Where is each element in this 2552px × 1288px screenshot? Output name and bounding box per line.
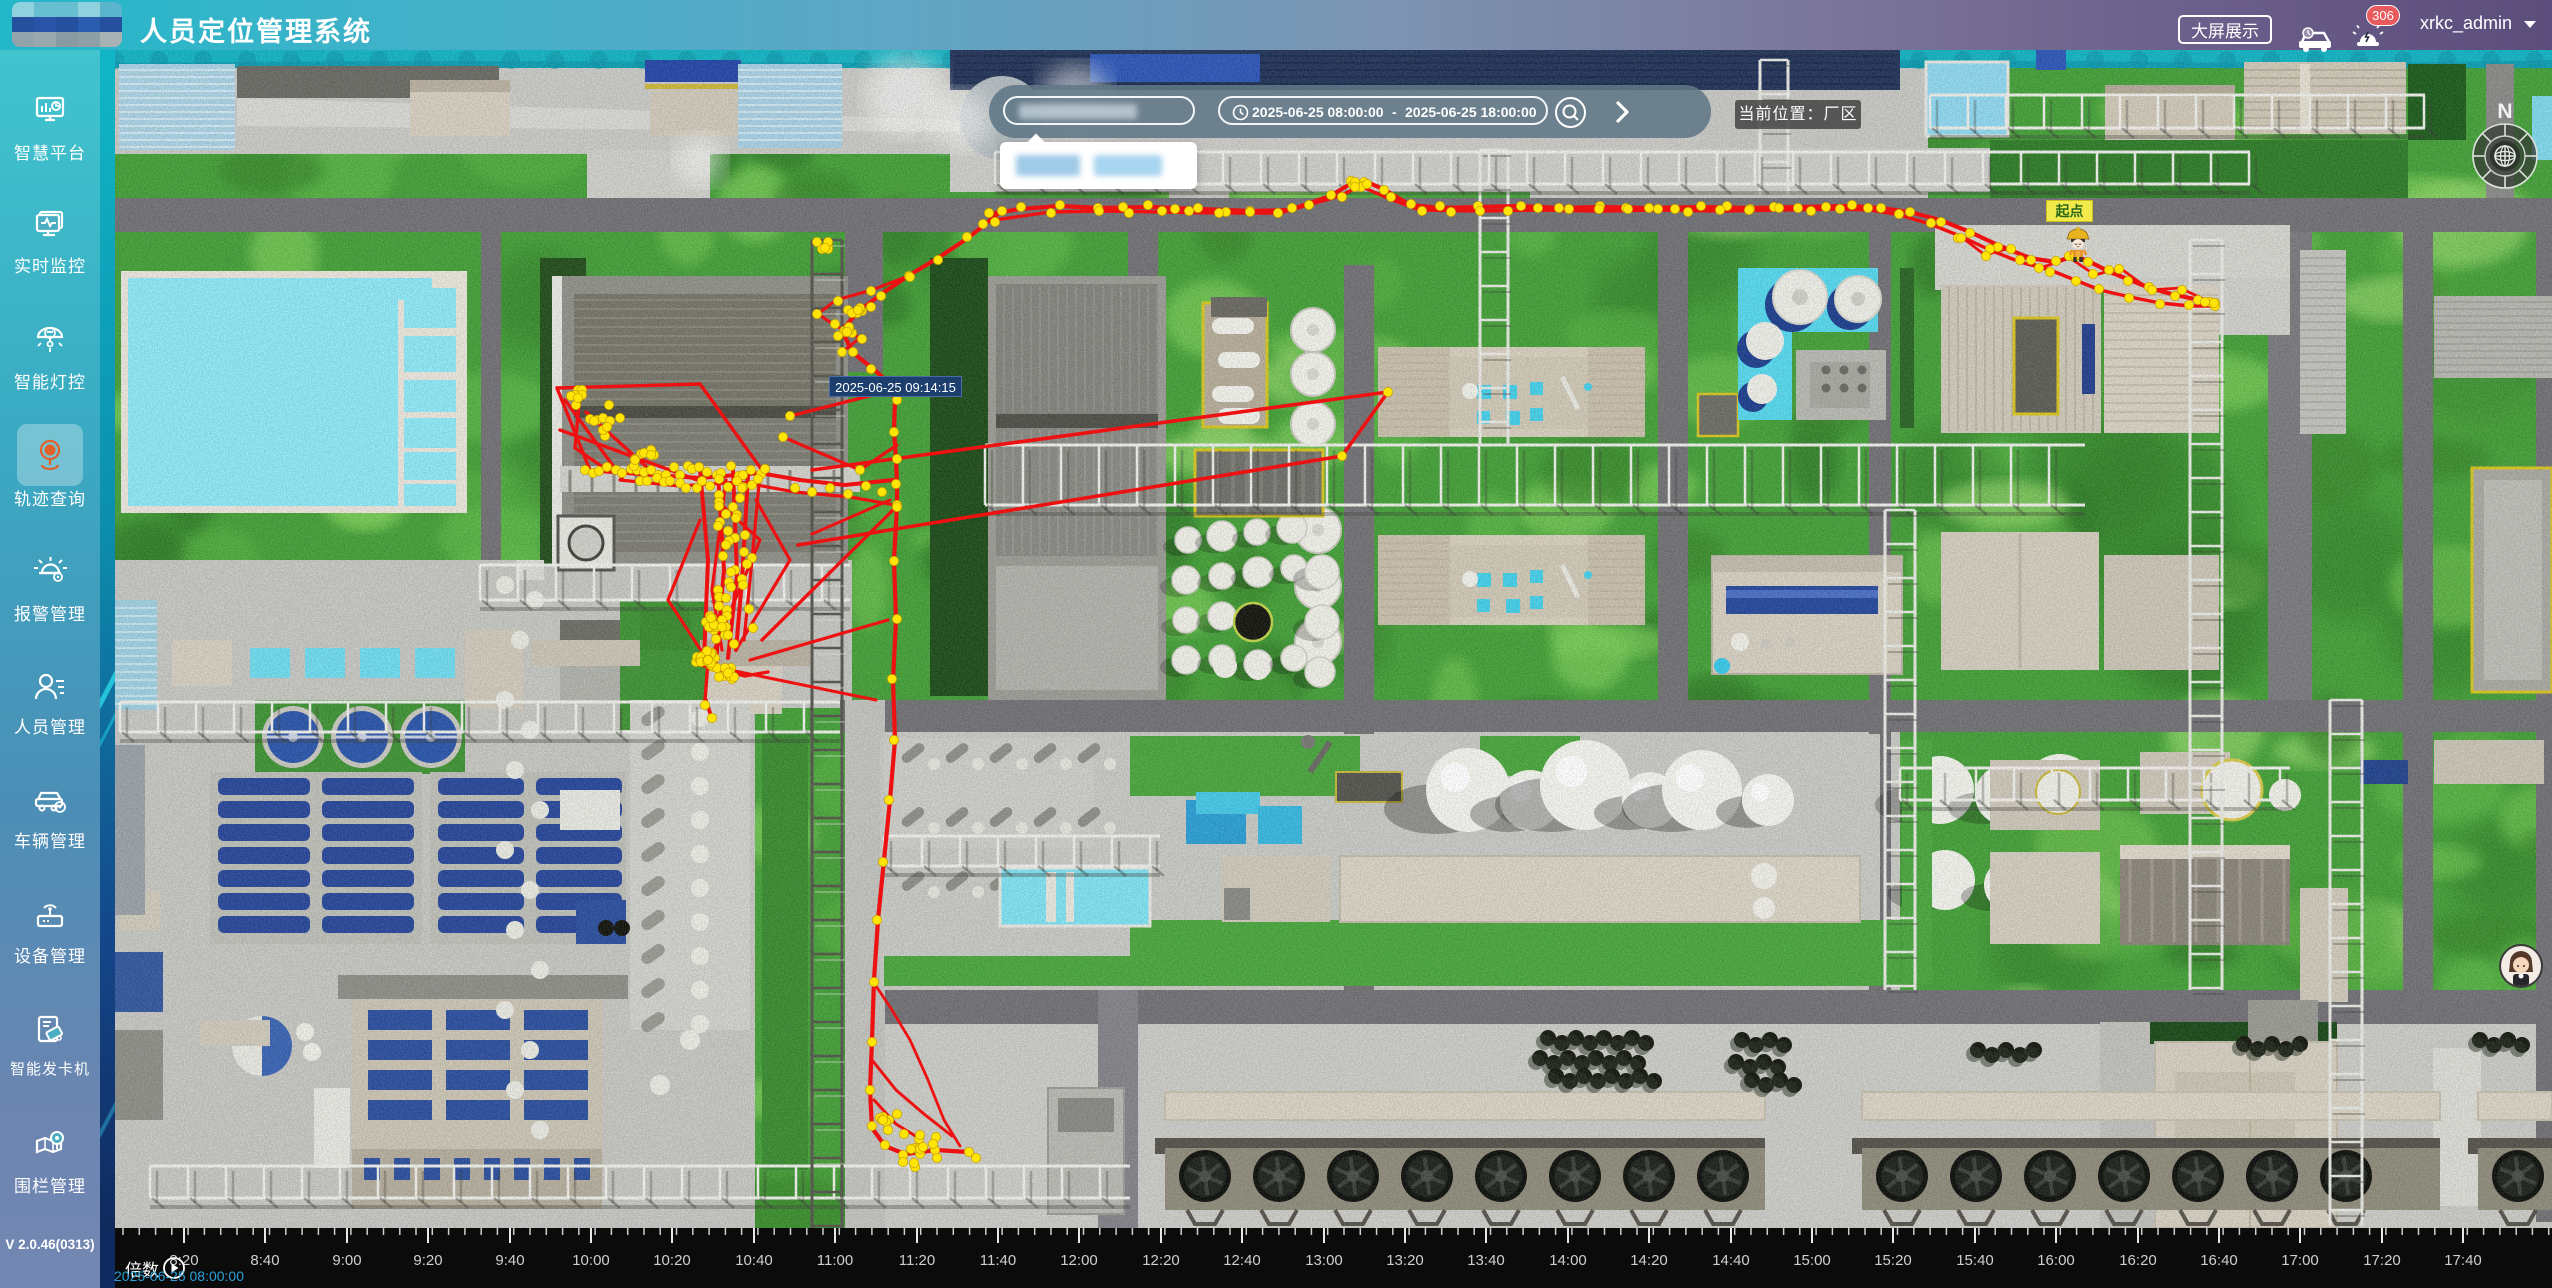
svg-text:N: N [2497,100,2512,123]
